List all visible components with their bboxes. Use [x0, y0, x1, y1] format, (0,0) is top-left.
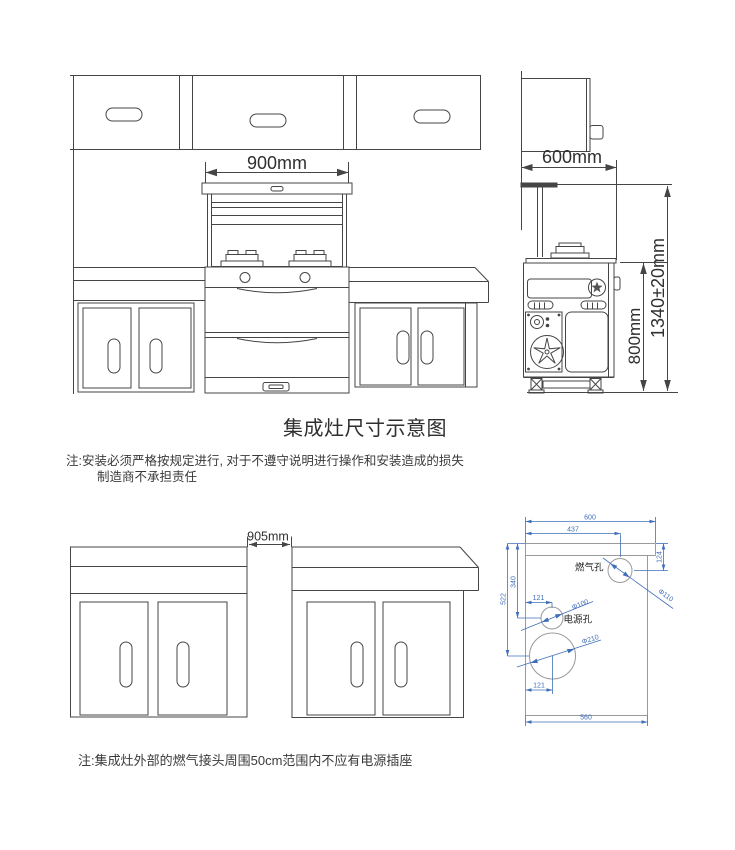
front-elevation-drawing: 900mm: [60, 70, 495, 405]
cutout-detail-drawing: 600 437 124 522 340 121 121 560 Φ110 Φ10…: [495, 508, 735, 735]
countertop-right: [349, 268, 489, 303]
install-note-line2: 制造商不承担责任: [66, 469, 464, 485]
cutout-hole-names: 燃气孔 电源孔: [564, 562, 604, 626]
overall-height-dim-label: 1340±20mm: [648, 238, 668, 338]
base-cabinet-left: [78, 303, 194, 392]
vent-slot: [528, 301, 553, 309]
power-dia-label: Φ100: [571, 599, 590, 612]
big-y-label: 522: [501, 593, 508, 605]
depth-dimension: [522, 160, 617, 260]
gap-cabinet-left: [71, 547, 248, 717]
depth-dim-label: 600mm: [542, 147, 602, 167]
upper-cabinet-side: [522, 79, 604, 152]
install-note-line1: 注:安装必须严格按规定进行, 对于不遵守说明进行操作和安装造成的损失: [66, 453, 464, 469]
cabinet-handle: [250, 114, 286, 127]
burner-side: [551, 243, 589, 258]
gas-dia-label: Φ110: [657, 588, 675, 604]
big-x-label: 121: [533, 683, 545, 690]
cabinet-handle: [414, 110, 450, 123]
burner-left: [221, 251, 263, 267]
installation-diagram-page: 900mm: [0, 0, 735, 850]
door-handle: [177, 642, 189, 687]
control-knob: [240, 273, 250, 283]
door-handle: [108, 339, 120, 373]
counter-height-dim-label: 800mm: [625, 308, 644, 365]
safety-note: 注:集成灶外部的燃气接头周围50cm范围内不应有电源插座: [78, 750, 412, 769]
door-handle: [395, 642, 407, 687]
door-handle: [421, 331, 433, 364]
control-knob: [300, 273, 310, 283]
burner-right: [289, 251, 331, 267]
door-handle: [150, 339, 162, 373]
stove-unit-front: [202, 183, 352, 393]
vent-slot: [581, 301, 606, 309]
display-panel: [528, 279, 592, 298]
opening-dim-label: 905mm: [247, 530, 289, 544]
cabinet-handle-side: [590, 126, 603, 140]
bottom-width-label: 560: [580, 715, 592, 722]
service-panel: [566, 312, 609, 372]
door-handle: [120, 642, 132, 687]
gas-hole-name: 燃气孔: [575, 562, 604, 574]
knob-side: [531, 316, 544, 329]
gas-y-label: 124: [657, 551, 664, 563]
opening-gap-drawing: 905mm: [60, 515, 500, 730]
big-dia-label: Φ210: [581, 634, 600, 646]
diagram-title: 集成灶尺寸示意图: [283, 412, 447, 441]
gap-cabinet-right: [292, 547, 479, 718]
countertop-left: [74, 268, 206, 301]
upper-cabinets: [70, 76, 481, 395]
door-handle: [397, 331, 409, 364]
side-view-drawing: 600mm 800mm 1340±20mm: [500, 68, 700, 398]
power-x-label: 121: [533, 595, 545, 602]
top-width-label: 600: [584, 515, 596, 522]
gas-x-label: 437: [567, 527, 579, 534]
power-y-label: 340: [511, 576, 518, 588]
cabinet-handle: [106, 108, 142, 121]
install-note: 注:安装必须严格按规定进行, 对于不遵守说明进行操作和安装造成的损失 制造商不承…: [66, 453, 464, 485]
stove-width-dim-label: 900mm: [247, 153, 307, 173]
power-hole-name: 电源孔: [564, 614, 593, 626]
door-handle: [351, 642, 363, 687]
fan-icon: [531, 336, 564, 369]
base-cabinet-right: [355, 303, 477, 387]
stove-unit-side: [524, 188, 621, 394]
